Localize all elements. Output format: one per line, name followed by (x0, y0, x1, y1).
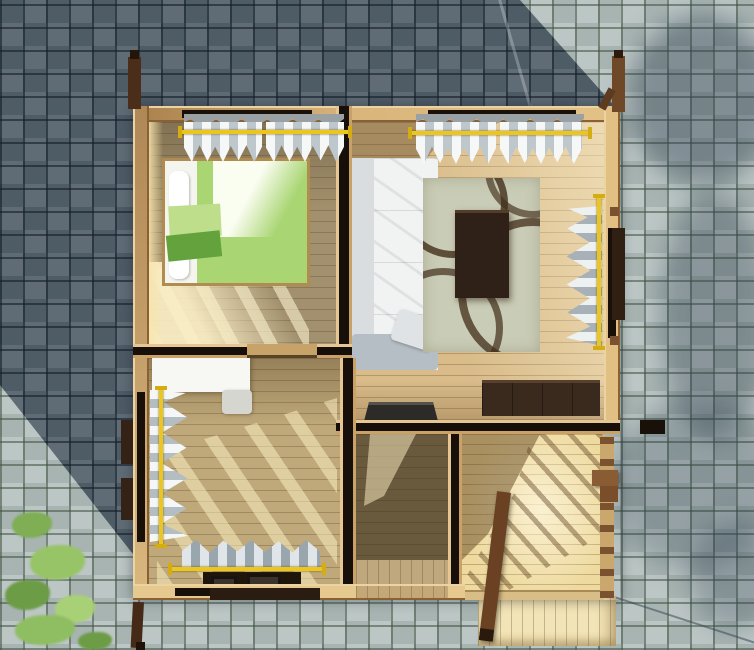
wall-living-south (336, 420, 620, 434)
corner-post-top-left-tip (130, 50, 139, 59)
rod-cap (155, 544, 167, 548)
coffee-table (455, 210, 509, 298)
curtain-rod-second-room-left (159, 388, 163, 546)
stool (222, 390, 252, 414)
rod-cap (322, 563, 326, 575)
rod-cap (348, 126, 352, 138)
corner-post-bottom-left-tip (136, 642, 145, 650)
porch-corner-bracket (600, 486, 618, 502)
curtain-rod-second-room-bottom (170, 567, 322, 571)
porch-corner-bracket (592, 470, 618, 486)
porch-steps (478, 596, 616, 646)
bed (162, 158, 310, 286)
wall-hall-porch (448, 434, 462, 584)
door-opening-living (640, 420, 665, 434)
hallway-door-light (356, 560, 448, 584)
rod-cap (178, 126, 182, 138)
shutter-right (612, 228, 625, 320)
shutter-hinge (610, 207, 619, 216)
rod-cap (588, 127, 592, 139)
window-opening-second-room-left (137, 392, 145, 542)
house (133, 106, 620, 600)
rod-cap (593, 194, 605, 198)
curtain-rod-living-top (410, 131, 590, 135)
shutter-bottom (210, 588, 320, 600)
shutter-left (121, 478, 133, 520)
rod-cap (408, 127, 412, 139)
corner-post-top-left (128, 57, 141, 109)
corner-post-top-right (612, 56, 625, 112)
shutter-hinge (610, 336, 619, 345)
hall-door-threshold (356, 586, 448, 598)
shutter-left (121, 420, 133, 464)
porch-floor (462, 434, 604, 600)
curtain-rod-living-right (597, 196, 601, 348)
corner-post-top-right-tip (614, 50, 623, 58)
wall-secondroom-hall (340, 358, 356, 584)
curtain-rod-bedroom-top (180, 130, 350, 134)
wall-bedroom-secondroom (133, 344, 352, 358)
sideboard (482, 380, 600, 416)
door-opening-bedroom (247, 344, 317, 358)
bed-duvet-sunlight (213, 161, 307, 237)
rod-cap (593, 346, 605, 350)
hallway-floor (356, 434, 448, 584)
bedroom-left-wall-light (149, 122, 163, 344)
scene (0, 0, 754, 650)
porch-railing-right (600, 436, 614, 598)
rod-cap (155, 386, 167, 390)
rod-cap (168, 563, 172, 575)
